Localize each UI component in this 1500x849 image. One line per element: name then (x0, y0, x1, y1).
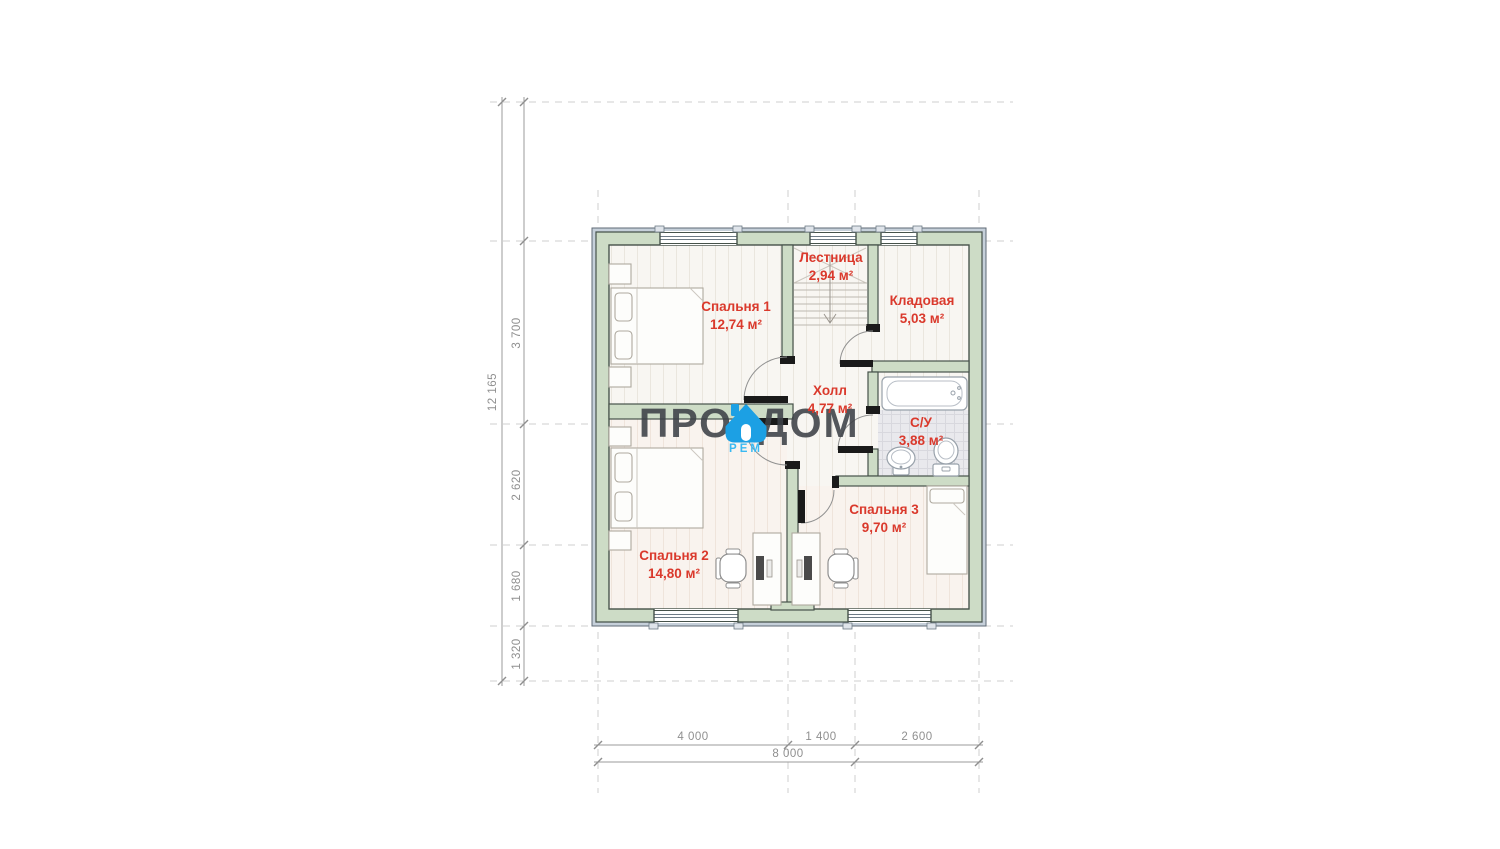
dim-seg-4000: 4 000 (677, 731, 708, 743)
wall-stairs-east (868, 245, 878, 331)
dim-seg-2620: 2 620 (511, 469, 523, 500)
monitor-icon (804, 556, 812, 580)
floor-plan-canvas: 12 165 3 700 2 620 1 680 1 320 4 000 1 4… (0, 0, 1500, 849)
label-bedroom1-area: 12,74 м² (710, 317, 763, 332)
dim-seg-2600: 2 600 (901, 731, 932, 743)
dim-seg-3700: 3 700 (511, 317, 523, 348)
dim-horizontal-total: 8 000 (772, 748, 803, 760)
label-stairs-name: Лестница (799, 250, 863, 265)
label-bedroom2-area: 14,80 м² (648, 566, 701, 581)
desk-right (792, 533, 820, 605)
label-storage-area: 5,03 м² (900, 311, 945, 326)
label-bathroom-name: С/У (910, 415, 933, 430)
keyboard-icon (797, 560, 802, 577)
watermark-word-left: ПРО (639, 400, 733, 446)
label-bedroom3-area: 9,70 м² (862, 520, 907, 535)
single-bed-bedroom3 (927, 486, 967, 574)
dim-seg-1400: 1 400 (805, 731, 836, 743)
keyboard-icon (767, 560, 772, 577)
label-bedroom2-name: Спальня 2 (639, 548, 709, 563)
label-bathroom-area: 3,88 м² (899, 433, 944, 448)
label-storage-name: Кладовая (890, 293, 955, 308)
wall-bathroom-south (836, 476, 969, 486)
desk-left (753, 533, 781, 605)
label-hall-name: Холл (813, 383, 847, 398)
dim-seg-1320: 1 320 (511, 638, 523, 669)
wall-stairs-west (782, 245, 793, 363)
bathtub (882, 377, 967, 410)
floor-plan-page: 12 165 3 700 2 620 1 680 1 320 4 000 1 4… (0, 0, 1500, 849)
label-bedroom3-name: Спальня 3 (849, 502, 919, 517)
dim-seg-1680: 1 680 (511, 570, 523, 601)
wall-storage-south (872, 361, 969, 372)
label-stairs-area: 2,94 м² (809, 268, 854, 283)
label-bedroom1-name: Спальня 1 (701, 299, 771, 314)
label-hall-area: 4,77 м² (808, 401, 853, 416)
dim-vertical-total: 12 165 (487, 373, 499, 411)
watermark-sub-label: РЕМ (729, 443, 763, 455)
monitor-icon (756, 556, 764, 580)
wall-bathroom-west-lower (868, 449, 878, 476)
